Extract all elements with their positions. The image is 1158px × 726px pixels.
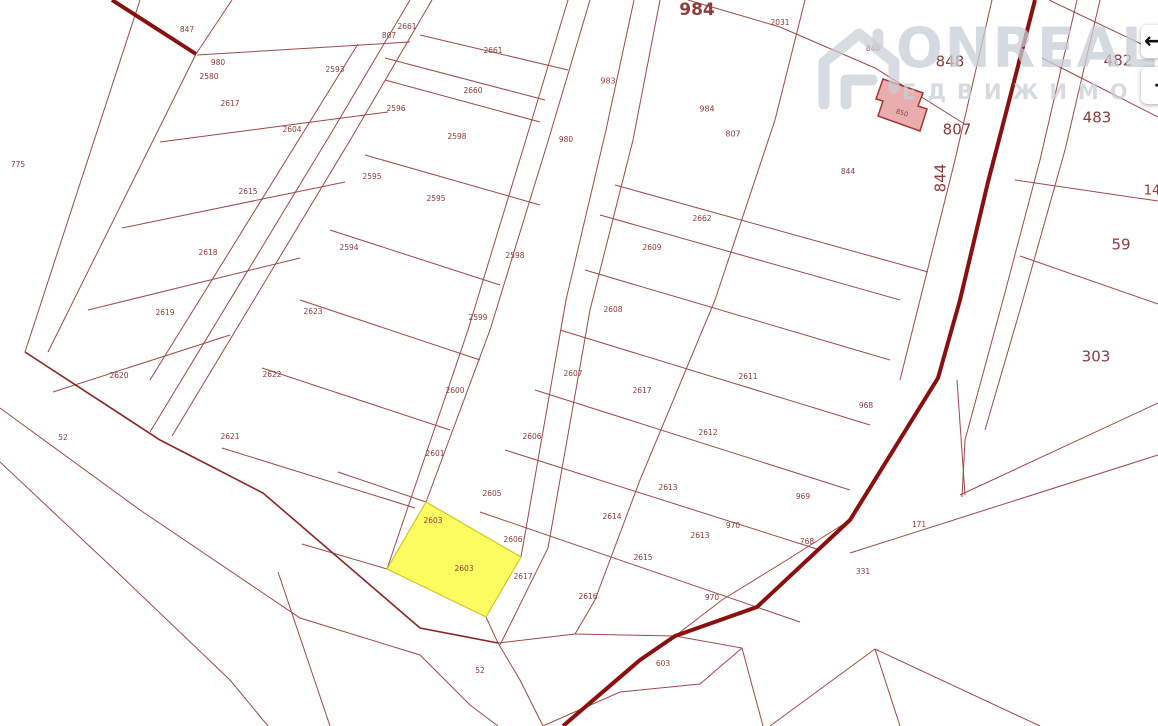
parcel-label: 2618	[198, 248, 217, 257]
parcel-label: 331	[856, 567, 871, 576]
parcel-label: 984	[679, 0, 715, 20]
parcel-label: 2617	[220, 99, 239, 108]
parcel-label: 2601	[425, 449, 444, 458]
parcel-label: 303	[1082, 348, 1111, 366]
parcel-boundary	[957, 380, 965, 495]
parcel-label: 2612	[698, 428, 717, 437]
parcel-boundary	[875, 649, 1040, 726]
parcel-boundary	[486, 617, 498, 643]
parcel-label: 2616	[578, 592, 597, 601]
parcel-label: 2620	[109, 371, 128, 380]
parcel-boundary	[498, 643, 543, 726]
parcel-boundary	[1015, 180, 1158, 201]
parcel-label: 2619	[155, 308, 174, 317]
cadastral-viewer: 7758479802580261725932604261525952594261…	[0, 0, 1158, 726]
parcel-boundary	[575, 600, 595, 634]
parcel-boundary	[875, 649, 900, 726]
parcel-label: 2611	[738, 372, 757, 381]
parcel-label: 970	[705, 593, 720, 602]
parcel-label: 807	[725, 130, 740, 139]
parcel-label: 2621	[220, 432, 239, 441]
parcel-label: 2617	[632, 386, 651, 395]
parcel-label: 2604	[282, 125, 301, 134]
parcel-label: 2614	[602, 512, 621, 521]
parcel-label: 984	[699, 105, 714, 114]
parcel-boundary	[278, 572, 330, 726]
parcel-label: 2603	[454, 564, 473, 573]
road-edge	[25, 352, 498, 643]
parcel-label: 2606	[503, 535, 522, 544]
parcel-label: 970	[726, 521, 741, 530]
arrow-right-icon: →	[1154, 73, 1158, 98]
parcel-boundary	[150, 0, 410, 432]
parcel-label: 483	[1083, 109, 1112, 127]
pan-left-button[interactable]: ←	[1141, 25, 1158, 58]
cadastral-map[interactable]: 7758479802580261725932604261525952594261…	[0, 0, 1158, 726]
parcel-label: 2595	[426, 194, 445, 203]
parcel-label: 2593	[325, 65, 344, 74]
parcel-boundary	[498, 634, 575, 643]
parcel-label: 171	[912, 520, 927, 529]
parcel-boundary	[302, 544, 387, 569]
parcel-label: 14	[1144, 184, 1158, 199]
parcel-label: 2600	[445, 386, 464, 395]
road-line	[563, 0, 1035, 726]
parcel-boundary	[770, 649, 875, 726]
parcel-label: 968	[859, 401, 874, 410]
parcel-boundary	[585, 270, 890, 360]
parcel-boundary	[560, 330, 870, 425]
parcel-boundary	[960, 403, 1158, 495]
parcel-label: 2606	[522, 432, 541, 441]
parcel-label: 980	[559, 135, 574, 144]
parcel-label: 2594	[339, 243, 358, 252]
parcel-label: 2608	[603, 305, 622, 314]
building-footprint[interactable]	[876, 79, 927, 131]
parcel-label: 844	[932, 164, 950, 193]
parcel-boundary	[615, 185, 928, 272]
parcel-label: 2603	[423, 516, 442, 525]
parcel-boundary	[962, 0, 1077, 497]
parcel-label: 2661	[483, 46, 502, 55]
parcel-label: 2615	[238, 187, 257, 196]
parcel-label: 969	[796, 492, 811, 501]
parcel-boundary	[1020, 256, 1158, 304]
parcel-label: 983	[600, 77, 615, 86]
parcel-boundary	[0, 462, 268, 726]
parcel-label: 2613	[690, 531, 709, 540]
parcel-boundary	[675, 636, 763, 726]
parcel-boundary	[850, 455, 1158, 553]
parcel-boundary	[88, 258, 300, 310]
parcel-label: 848	[866, 44, 881, 53]
parcel-label: 847	[180, 25, 195, 34]
arrow-left-icon: ←	[1144, 29, 1158, 54]
parcel-label: 2662	[692, 214, 711, 223]
parcel-label: 2615	[633, 553, 652, 562]
parcel-label: 2031	[770, 18, 789, 27]
parcel-label: 2623	[303, 307, 322, 316]
parcel-boundary	[688, 0, 963, 123]
parcel-label: 768	[800, 537, 815, 546]
parcel-boundary	[222, 448, 415, 508]
parcel-boundary	[160, 112, 388, 142]
parcel-label: 2622	[262, 370, 281, 379]
parcel-boundary	[595, 0, 805, 600]
parcel-label: 980	[211, 58, 226, 67]
parcel-label: 482	[1104, 52, 1133, 70]
parcel-label: 2617	[513, 572, 532, 581]
parcel-label: 844	[841, 167, 856, 176]
parcel-boundary	[330, 230, 500, 285]
parcel-label: 2596	[386, 104, 405, 113]
parcel-label: 2598	[447, 132, 466, 141]
parcel-label: 807	[382, 31, 397, 40]
parcel-label: 2599	[468, 313, 487, 322]
parcel-boundary	[985, 0, 1100, 430]
parcel-label: 2660	[463, 86, 482, 95]
parcel-label: 775	[11, 160, 26, 169]
parcel-label: 2613	[658, 483, 677, 492]
parcel-boundary	[300, 300, 480, 360]
parcel-label: 59	[1111, 236, 1130, 254]
parcel-boundary	[196, 0, 232, 54]
parcel-boundary	[575, 634, 675, 636]
parcel-label: 2605	[482, 489, 501, 498]
parcel-label: 2595	[362, 172, 381, 181]
parcel-label: 603	[656, 659, 671, 668]
parcel-label: 52	[58, 433, 68, 442]
parcel-label: 2661	[397, 22, 416, 31]
parcel-boundary	[500, 0, 660, 645]
parcel-boundary	[25, 0, 140, 352]
parcel-boundary	[262, 368, 450, 430]
parcel-label: 848	[936, 53, 965, 71]
pan-right-button[interactable]: →	[1141, 67, 1158, 104]
parcel-label: 2598	[505, 251, 524, 260]
parcel-label: 2607	[563, 369, 582, 378]
parcel-label: 807	[943, 121, 972, 139]
parcel-label: 2580	[199, 72, 218, 81]
parcel-boundary	[150, 44, 358, 380]
parcel-label: 52	[475, 666, 485, 675]
parcel-label: 2609	[642, 243, 661, 252]
